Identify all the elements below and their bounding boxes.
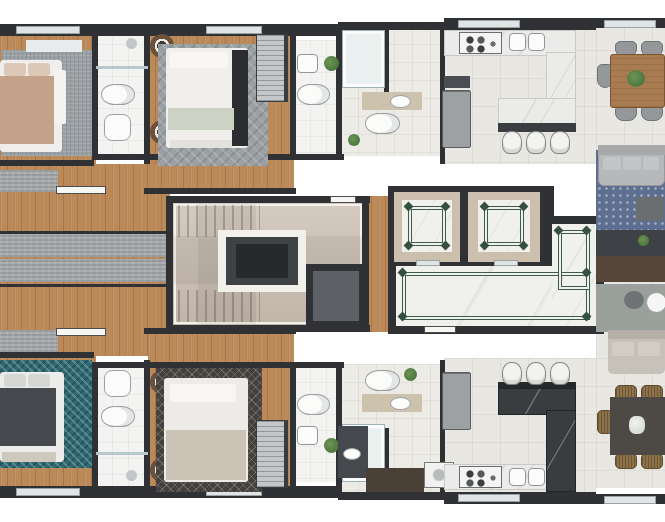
sink-a3	[390, 95, 411, 108]
wall-top-social	[338, 22, 444, 30]
wall-b-v1	[92, 368, 98, 494]
unit-a-entry-door	[56, 186, 106, 194]
wall-bottom-social	[338, 492, 444, 500]
bed-a1-pillow-left	[4, 63, 26, 76]
window-a2	[206, 26, 262, 34]
wall-a-v3	[290, 36, 296, 156]
entry-runner-a	[0, 170, 58, 192]
kitchen-b-sink-1	[509, 468, 526, 486]
bed-b1-pillow-right	[28, 374, 50, 387]
toilet-b1	[101, 406, 135, 427]
bed-a1-blanket	[0, 76, 54, 144]
plant-a2	[324, 56, 339, 71]
corridor-line-1	[0, 231, 170, 234]
wall-a-h3	[144, 188, 296, 194]
sofa-a-cushion-1	[603, 157, 621, 170]
stool-b-3	[550, 362, 570, 385]
laundry-counter2-b	[366, 468, 424, 492]
desk-chair-b	[624, 291, 644, 309]
sofa-a-cushion-3	[643, 157, 659, 170]
sofa-b-cushion-2	[638, 342, 660, 356]
shower-glass-a1	[96, 66, 148, 69]
sideboard-a	[596, 230, 665, 256]
dining-b-chair-bottom-2	[641, 453, 663, 469]
plant-b2	[324, 438, 339, 453]
wall-b-h2	[0, 352, 94, 358]
window-a1	[16, 26, 80, 34]
dining-b-chair-bottom-1	[615, 453, 637, 469]
bed-b2-pillows	[170, 384, 236, 402]
window-dining-a	[604, 20, 656, 28]
plant-b3	[404, 368, 417, 381]
bed-a1-bench	[54, 70, 66, 124]
toilet-b3	[365, 370, 400, 391]
lobby-door	[424, 326, 456, 333]
entry-runner-b	[0, 330, 58, 352]
bed-b2-blanket	[166, 430, 246, 480]
sideboard-a-plant	[638, 235, 649, 246]
stair-wall-left	[166, 196, 173, 332]
wardrobe-a-edge	[284, 34, 288, 102]
wardrobe-b-edge	[284, 420, 288, 488]
kitchen-a-island	[498, 98, 576, 125]
bed-a2-throw	[168, 108, 234, 130]
elevator-2-door	[494, 260, 518, 266]
stool-b-1	[502, 362, 522, 385]
sofa-b-cushion-1	[612, 342, 634, 356]
window-b1	[16, 488, 80, 496]
shelf-brown-b	[596, 256, 665, 282]
dining-a-centerpiece	[627, 70, 645, 87]
wall-b-v3	[290, 368, 296, 488]
shower-box-a3	[342, 30, 385, 88]
toilet-a3	[365, 113, 400, 134]
bed-b1-blanket	[0, 388, 56, 446]
stove-b	[459, 466, 502, 488]
showerhead-a1	[126, 38, 137, 49]
toilet-b2	[297, 394, 330, 415]
kitchen-a-sink-2	[528, 33, 545, 51]
plant-a3	[348, 134, 360, 146]
coffee-table-a	[636, 197, 664, 221]
stair-steps-bottom	[178, 290, 260, 322]
bed-b1-foot-bench	[2, 452, 56, 462]
bed-a1-pillow-right	[28, 63, 50, 76]
elevator-1-border	[408, 206, 446, 246]
stair-void-core	[236, 244, 288, 278]
toilet-a1	[101, 84, 135, 105]
bed-a2-foot-bench	[170, 140, 232, 148]
kitchen-b-sink-2	[528, 468, 545, 486]
window-kitchen-a	[458, 20, 520, 28]
stool-a-2	[526, 131, 546, 154]
wardrobe-b	[256, 420, 286, 488]
bed-a2-dark-band	[232, 50, 248, 146]
dresser-a1	[26, 40, 82, 52]
floor-plan-canvas	[0, 0, 665, 522]
stove-a	[459, 32, 502, 54]
fridge-b	[442, 372, 471, 430]
window-dining-b	[604, 496, 656, 504]
sink-b2	[297, 426, 318, 445]
dining-b-flowers	[629, 416, 645, 434]
fridge-a	[442, 90, 471, 148]
kitchen-b-counter-arm	[546, 410, 576, 492]
kitchen-a-sink-1	[509, 33, 526, 51]
bed-a2-pillows	[170, 52, 228, 68]
corridor-runner-1	[0, 234, 168, 257]
bed-b1-pillow-left	[4, 374, 26, 387]
sink-b3	[390, 397, 411, 410]
shelf-above-fridge-a	[444, 76, 470, 88]
elevator-1-door	[416, 260, 440, 266]
stool-b-2	[526, 362, 546, 385]
corridor-runner-2	[0, 259, 168, 282]
stool-a-1	[502, 131, 522, 154]
stair-hall-door	[330, 196, 356, 203]
lobby-arm-border	[558, 230, 590, 290]
elevator-2-border	[484, 206, 524, 246]
wall-a-h2	[0, 160, 94, 166]
corridor-line-2	[0, 284, 170, 287]
toilet-a2	[297, 84, 330, 105]
sofa-b-back	[608, 330, 665, 339]
wall-a-v1	[92, 28, 98, 160]
unit-b-entry-door	[56, 328, 106, 336]
duct-room-floor	[313, 271, 359, 321]
window-kitchen-b	[458, 494, 520, 502]
wardrobe-a	[256, 34, 286, 102]
showerhead-b1	[126, 470, 137, 481]
sink-a1	[104, 114, 131, 141]
bathroom-b2-floor	[294, 366, 340, 482]
laundry-sink-b	[343, 448, 361, 460]
shower-glass-b1	[96, 452, 148, 455]
sink-a2	[297, 54, 318, 73]
sofa-a-cushion-2	[623, 157, 641, 170]
desk-table-b	[646, 292, 665, 313]
sofa-a-back	[598, 145, 665, 155]
stool-a-3	[550, 131, 570, 154]
sink-b1	[104, 370, 131, 397]
